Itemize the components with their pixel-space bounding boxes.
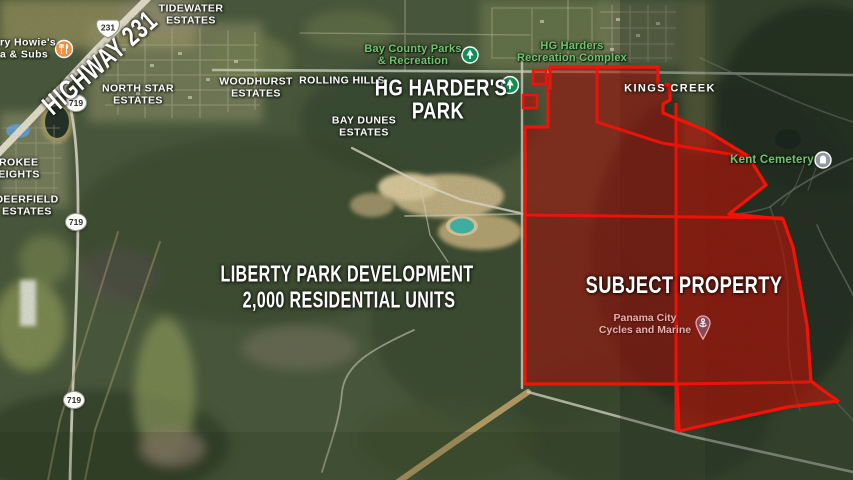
fl-719-shield: 719	[65, 94, 87, 112]
fl-719-shield: 719	[65, 213, 87, 231]
us-231-shield-number: 231	[96, 19, 120, 40]
park-icon[interactable]	[500, 75, 520, 95]
fl-719-shield: 719	[63, 391, 85, 409]
us-231-shield: 231	[96, 19, 120, 40]
fl-719-shield-number: 719	[64, 392, 84, 408]
cemetery-icon[interactable]	[814, 151, 833, 170]
restaurant-icon[interactable]	[54, 39, 74, 59]
fl-719-shield-number: 719	[66, 214, 86, 230]
fl-719-shield-number: 719	[66, 95, 86, 111]
park-icon[interactable]	[461, 46, 480, 65]
parcel-outlot	[533, 70, 546, 84]
parcel-outlot	[523, 95, 537, 108]
map-canvas[interactable]: 231 719 719 719 TIDEWATERESTATES WOODHUR…	[0, 0, 853, 480]
subject-property-overlay	[0, 0, 853, 480]
marina-pin-icon[interactable]	[693, 314, 713, 340]
